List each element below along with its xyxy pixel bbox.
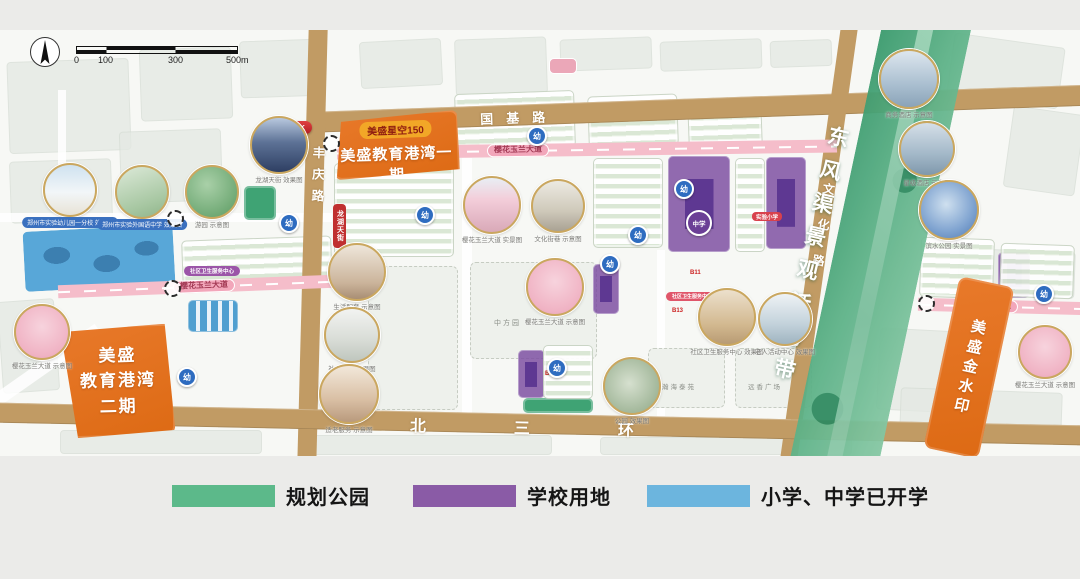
metro-station-marker — [164, 280, 181, 297]
kindergarten-marker: 幼 — [547, 358, 567, 378]
kindergarten-marker: 幼 — [628, 225, 648, 245]
map-texture-block — [359, 38, 443, 89]
photo-caption: 滨水公园 实景图 — [884, 240, 1014, 250]
kindergarten-marker: 幼 — [600, 254, 620, 274]
photo-caption: 商务酒店 示意图 — [844, 109, 974, 119]
photo-callout: 商务酒店 示意图 — [879, 49, 939, 109]
planning-map: 国基路 丰庆路 文化路 北三环 樱花玉兰大道 樱花玉兰大道 樱花玉兰大道 东风渠… — [0, 30, 1080, 456]
photo-callout: 樱花玉兰大道 示意图 — [14, 304, 70, 360]
school-badge: 实验小学 — [752, 212, 782, 221]
map-texture-block — [770, 39, 833, 68]
photo-callout: 社区卫生服务中心 效果图 — [698, 288, 756, 346]
compass-needle-icon — [41, 40, 50, 64]
photo-callout: 滨水公园 实景图 — [919, 180, 979, 240]
planned-park-zone — [244, 186, 276, 220]
kindergarten-marker: 幼 — [1034, 284, 1054, 304]
school-land-zone — [518, 350, 545, 398]
kindergarten-marker: 幼 — [279, 213, 299, 233]
map-texture-block — [660, 38, 763, 72]
photo-caption: 樱花玉兰大道 示意图 — [980, 379, 1080, 389]
photo-callout: 生活配套 示意图 — [328, 243, 386, 301]
legend-swatch-park — [172, 485, 275, 507]
phase2-line2: 教育港湾 — [62, 367, 175, 395]
kindergarten-marker: 幼 — [527, 126, 547, 146]
photo-callout: 龙湖天街 效果图 — [250, 116, 308, 174]
photo-caption: 老人活动中心 效果图 — [720, 346, 850, 356]
compass-icon — [30, 37, 60, 67]
road-guoji-label: 国基路 — [480, 106, 559, 128]
map-texture-block — [454, 36, 548, 96]
photo-callout: 社区配套 效果图 — [324, 307, 380, 363]
middle-school-marker: 中学 — [686, 210, 712, 236]
metro-station-marker — [323, 135, 340, 152]
photo-caption: 樱花玉兰大道 示意图 — [490, 316, 620, 326]
map-texture-block — [6, 58, 131, 154]
road-sakura-label: 樱花玉兰大道 — [173, 279, 235, 294]
scale-tick: 0 — [74, 55, 79, 65]
photo-callout: 公园 效果图 — [603, 357, 661, 415]
planning-map-page: { "scale_bar": {"ticks": ["0", "100", "3… — [0, 0, 1080, 579]
kindergarten-marker: 幼 — [674, 179, 694, 199]
photo-callout: 文化街巷 示意图 — [531, 179, 585, 233]
area-label-plaza: 远香广场 — [748, 381, 782, 391]
photo-caption: 适老服务 示意图 — [284, 424, 414, 434]
metro-station-marker — [167, 210, 184, 227]
photo-callout: 樱花玉兰大道 示意图 — [1018, 325, 1072, 379]
planned-park-zone — [523, 398, 593, 413]
opened-school-buildings — [188, 300, 238, 332]
legend-label-schools-open: 小学、中学已开学 — [761, 481, 929, 510]
legend-item-school-land: 学校用地 — [413, 481, 611, 510]
jinshuiyin-title: 美盛金水印 — [948, 316, 989, 418]
photo-caption: 龙湖天街 效果图 — [214, 174, 344, 184]
photo-callout: 老人活动中心 效果图 — [758, 292, 812, 346]
scale-tick: 100 — [98, 55, 113, 65]
kindergarten-marker: 幼 — [177, 367, 197, 387]
photo-caption: 文化街巷 示意图 — [493, 233, 623, 243]
photo-callout: 樱花玉兰大道 示意图 — [526, 258, 584, 316]
photo-caption: 樱花玉兰大道 示意图 — [0, 360, 107, 370]
photo-callout: 郑州市实验外国语中学 效果图 — [115, 165, 169, 219]
pink-parcel — [549, 58, 577, 74]
legend-swatch-school-land — [413, 485, 516, 507]
photo-callout: 郑州市实验幼儿园一分校 效果图 — [43, 163, 97, 217]
legend-label-school-land: 学校用地 — [527, 481, 611, 510]
photo-callout: 星级酒店 示意图 — [899, 121, 955, 177]
housing-cluster — [735, 158, 765, 252]
plot-code-b13: B13 — [672, 308, 683, 314]
vacant-parcel — [368, 266, 458, 410]
kindergarten-marker: 幼 — [415, 205, 435, 225]
photo-caption: 公园 效果图 — [567, 415, 697, 425]
map-texture-block — [1003, 105, 1080, 196]
legend-label-park: 规划公园 — [286, 481, 370, 510]
community-health-badge: 社区卫生服务中心 — [184, 266, 240, 276]
area-label-hanhai: 瀚海泰苑 — [662, 381, 696, 391]
scale-bar-segments — [76, 46, 238, 54]
plot-code-b11: B11 — [690, 270, 701, 276]
scale-tick: 300 — [168, 55, 183, 65]
scale-bar: 0 100 300 500m — [76, 46, 238, 66]
photo-caption: 星级酒店 示意图 — [862, 177, 992, 187]
school-land-zone — [668, 156, 730, 252]
legend-item-park: 规划公园 — [172, 481, 370, 510]
scale-tick: 500m — [226, 55, 249, 65]
phase2-line3: 二期 — [62, 392, 175, 420]
photo-callout: 适老服务 示意图 — [319, 364, 379, 424]
metro-station-marker — [918, 295, 935, 312]
longhu-tianjie-badge: 龙湖天街 — [333, 204, 346, 248]
legend-swatch-schools-open — [647, 485, 750, 507]
photo-callout: 樱花玉兰大道 实景图 — [463, 176, 521, 234]
scale-bar-ticks: 0 100 300 500m — [76, 54, 238, 66]
road-sakura-label: 樱花玉兰大道 — [487, 144, 549, 158]
star150-badge: 美盛星空150 — [359, 120, 432, 140]
legend-item-schools-open: 小学、中学已开学 — [647, 481, 929, 510]
project-phase2-block: 美盛 教育港湾 二期 — [61, 324, 176, 439]
